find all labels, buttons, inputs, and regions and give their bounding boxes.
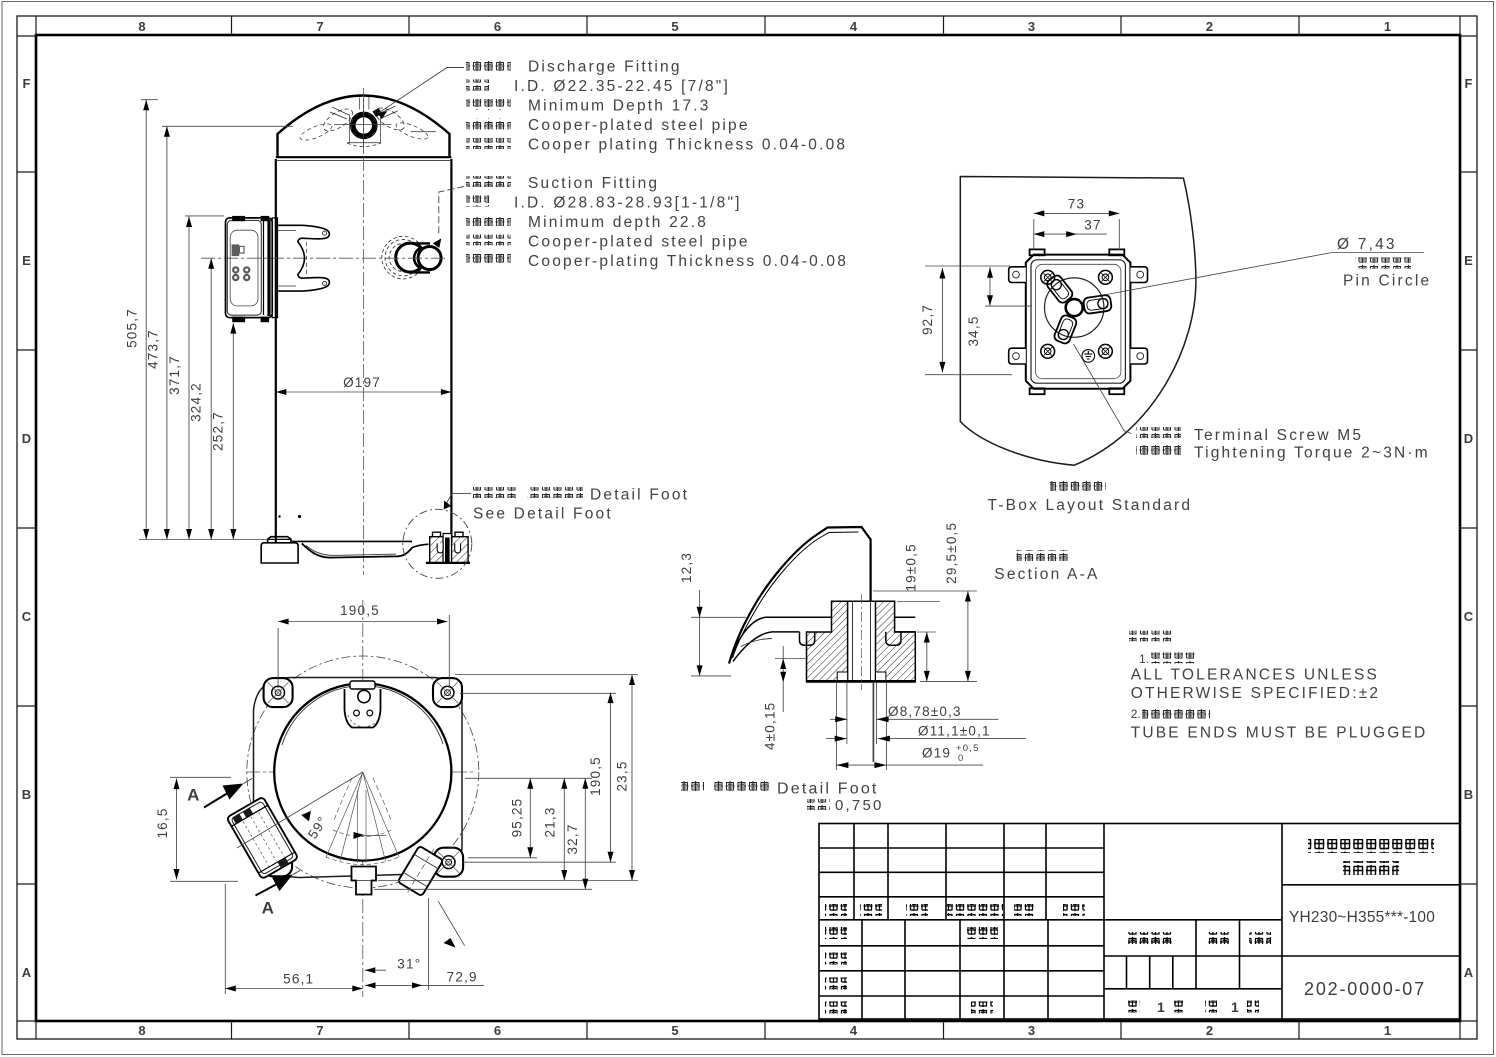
svg-text:72,9: 72,9 — [447, 970, 478, 985]
svg-text:A: A — [1464, 965, 1474, 980]
svg-text:19±0,5: 19±0,5 — [904, 543, 919, 591]
svg-text:95,25: 95,25 — [510, 798, 525, 838]
svg-text:C: C — [1464, 609, 1474, 624]
svg-text:1: 1 — [1384, 1023, 1391, 1038]
svg-text:Ø19: Ø19 — [922, 746, 951, 761]
svg-text:See Detail Foot: See Detail Foot — [473, 506, 613, 523]
svg-text:2: 2 — [1206, 1023, 1213, 1038]
svg-text:8: 8 — [138, 19, 145, 34]
svg-text:F: F — [23, 76, 31, 91]
svg-text:Terminal Screw M5: Terminal Screw M5 — [1194, 427, 1363, 444]
svg-text:1: 1 — [1157, 999, 1165, 1015]
svg-text:29,5±0,5: 29,5±0,5 — [944, 522, 959, 584]
svg-text:31°: 31° — [397, 956, 421, 971]
svg-text:A: A — [262, 899, 274, 918]
svg-text:TUBE ENDS MUST BE PLUGGED: TUBE ENDS MUST BE PLUGGED — [1131, 725, 1428, 742]
svg-text:OTHERWISE SPECIFIED:±2: OTHERWISE SPECIFIED:±2 — [1131, 685, 1381, 702]
svg-text:E: E — [1464, 253, 1473, 268]
svg-text:202-0000-07: 202-0000-07 — [1304, 979, 1426, 999]
svg-text:3: 3 — [1028, 19, 1035, 34]
svg-text:B: B — [1464, 787, 1473, 802]
svg-text:5: 5 — [671, 1023, 678, 1038]
svg-text:7: 7 — [316, 19, 323, 34]
svg-text:Discharge Fitting: Discharge Fitting — [528, 59, 682, 76]
svg-text:1.: 1. — [1139, 652, 1149, 666]
svg-text:T-Box Layout Standard: T-Box Layout Standard — [988, 497, 1193, 514]
svg-text:I.D. Ø22.35-22.45 [7/8"]: I.D. Ø22.35-22.45 [7/8"] — [514, 78, 730, 95]
svg-text:Minimum depth 22.8: Minimum depth 22.8 — [528, 214, 708, 231]
svg-text:YH230~H355***-100: YH230~H355***-100 — [1289, 909, 1435, 926]
svg-text:1: 1 — [1384, 19, 1391, 34]
svg-text:324,2: 324,2 — [189, 382, 204, 422]
svg-text:Section A-A: Section A-A — [994, 566, 1099, 583]
svg-text:Ø197: Ø197 — [343, 375, 381, 390]
svg-text:0: 0 — [958, 753, 964, 764]
svg-text:Detail Foot: Detail Foot — [590, 487, 689, 504]
svg-text:32,7: 32,7 — [565, 823, 580, 854]
svg-text:Tightening Torque 2~3N·m: Tightening Torque 2~3N·m — [1194, 445, 1430, 462]
svg-text:34,5: 34,5 — [966, 315, 981, 346]
svg-text:73: 73 — [1068, 197, 1085, 212]
svg-text:23,5: 23,5 — [614, 760, 629, 791]
svg-text:Cooper-plated steel pipe: Cooper-plated steel pipe — [528, 117, 750, 134]
svg-text:7: 7 — [316, 1023, 323, 1038]
svg-text:56,1: 56,1 — [283, 971, 314, 986]
svg-text:Ø11,1±0,1: Ø11,1±0,1 — [918, 724, 991, 739]
svg-text:Cooper-plating Thickness 0.04-: Cooper-plating Thickness 0.04-0.08 — [528, 253, 848, 270]
svg-text:4: 4 — [850, 1023, 858, 1038]
svg-text:D: D — [1464, 431, 1473, 446]
svg-text:Ø8,78±0,3: Ø8,78±0,3 — [888, 704, 962, 719]
svg-text:I.D. Ø28.83-28.93[1-1/8"]: I.D. Ø28.83-28.93[1-1/8"] — [514, 195, 742, 212]
svg-text:Cooper plating Thickness 0.04-: Cooper plating Thickness 0.04-0.08 — [528, 137, 847, 154]
svg-text:8: 8 — [138, 1023, 145, 1038]
svg-text:A: A — [22, 965, 32, 980]
svg-text:F: F — [1465, 76, 1473, 91]
svg-text:3: 3 — [1028, 1023, 1035, 1038]
svg-text:473,7: 473,7 — [146, 329, 161, 369]
svg-text:1: 1 — [1231, 999, 1239, 1015]
svg-text:16,5: 16,5 — [155, 807, 170, 838]
svg-text:92,7: 92,7 — [920, 304, 935, 335]
svg-text:Detail Foot: Detail Foot — [777, 781, 879, 798]
svg-text:4±0,15: 4±0,15 — [762, 702, 777, 750]
svg-text:21,3: 21,3 — [543, 806, 558, 837]
svg-text:Suction Fitting: Suction Fitting — [528, 175, 659, 192]
svg-text:505,7: 505,7 — [125, 308, 140, 348]
svg-text:252,7: 252,7 — [211, 411, 226, 451]
svg-text:6: 6 — [494, 1023, 501, 1038]
svg-text:2: 2 — [1206, 19, 1213, 34]
svg-text:D: D — [22, 431, 31, 446]
svg-text:ALL TOLERANCES UNLESS: ALL TOLERANCES UNLESS — [1131, 667, 1379, 684]
svg-text:Minimum Depth 17.3: Minimum Depth 17.3 — [528, 98, 711, 115]
svg-text:A: A — [187, 786, 199, 805]
svg-text:Pin Circle: Pin Circle — [1343, 273, 1431, 290]
svg-text:0,750: 0,750 — [835, 797, 884, 814]
svg-text:37: 37 — [1084, 218, 1101, 233]
svg-text:5: 5 — [671, 19, 678, 34]
svg-text:2.: 2. — [1131, 707, 1141, 721]
svg-text:Cooper-plated steel pipe: Cooper-plated steel pipe — [528, 234, 750, 251]
svg-text:6: 6 — [494, 19, 501, 34]
svg-text:190,5: 190,5 — [340, 603, 380, 618]
svg-text:E: E — [22, 253, 31, 268]
svg-text:4: 4 — [850, 19, 858, 34]
svg-text:12,3: 12,3 — [679, 552, 694, 583]
svg-text:371,7: 371,7 — [167, 355, 182, 395]
svg-text:B: B — [22, 787, 31, 802]
svg-text:Ø 7,43: Ø 7,43 — [1337, 236, 1397, 253]
svg-text:C: C — [22, 609, 32, 624]
svg-text:190,5: 190,5 — [588, 756, 603, 796]
